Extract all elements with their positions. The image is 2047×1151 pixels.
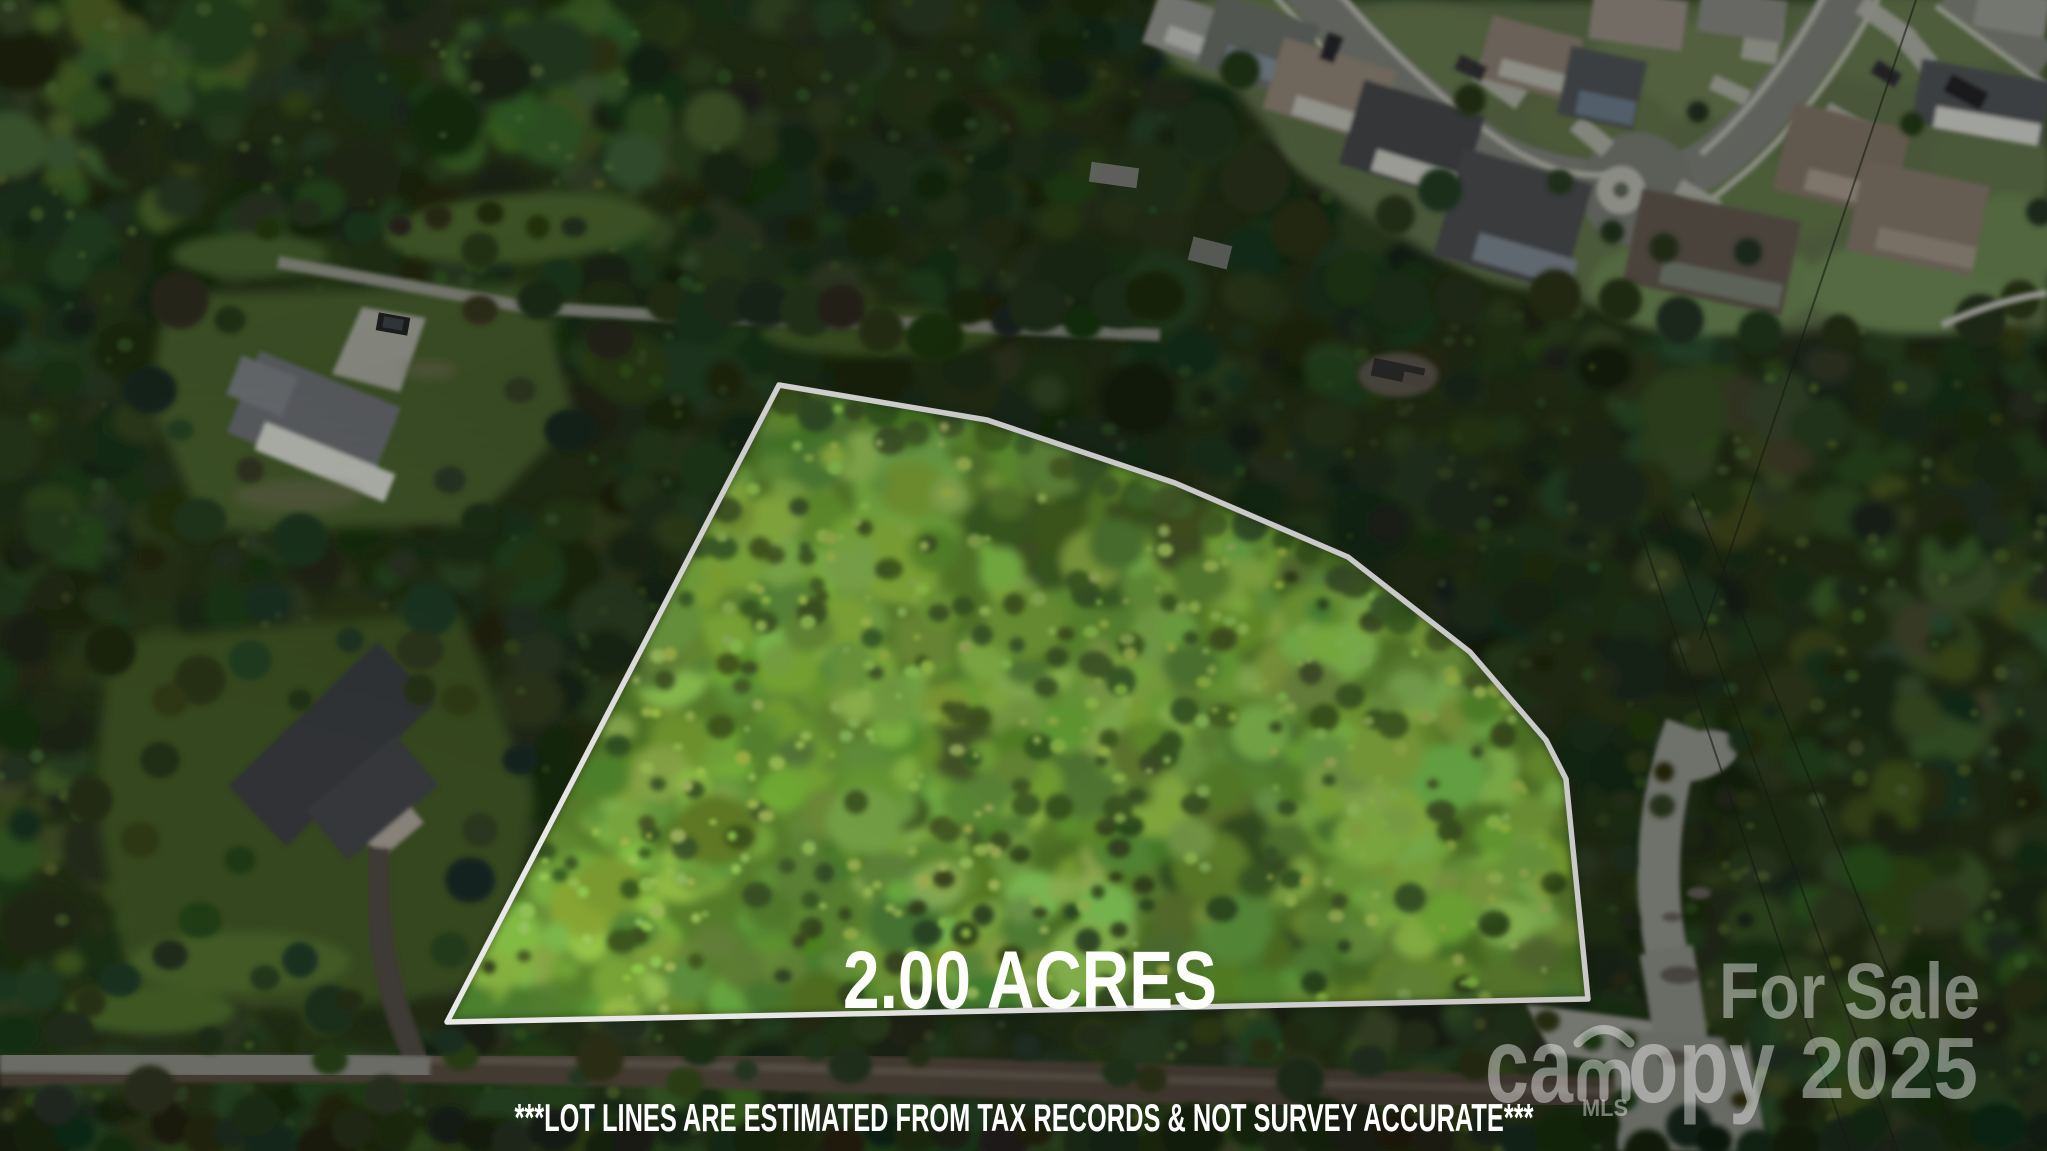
svg-text:***LOT LINES ARE ESTIMATED FRO: ***LOT LINES ARE ESTIMATED FROM TAX RECO… [515,1097,1535,1140]
svg-text:2.00 ACRES: 2.00 ACRES [843,935,1217,1026]
svg-text:2025: 2025 [1800,1020,1978,1117]
svg-text:opy: opy [1628,1004,1775,1125]
